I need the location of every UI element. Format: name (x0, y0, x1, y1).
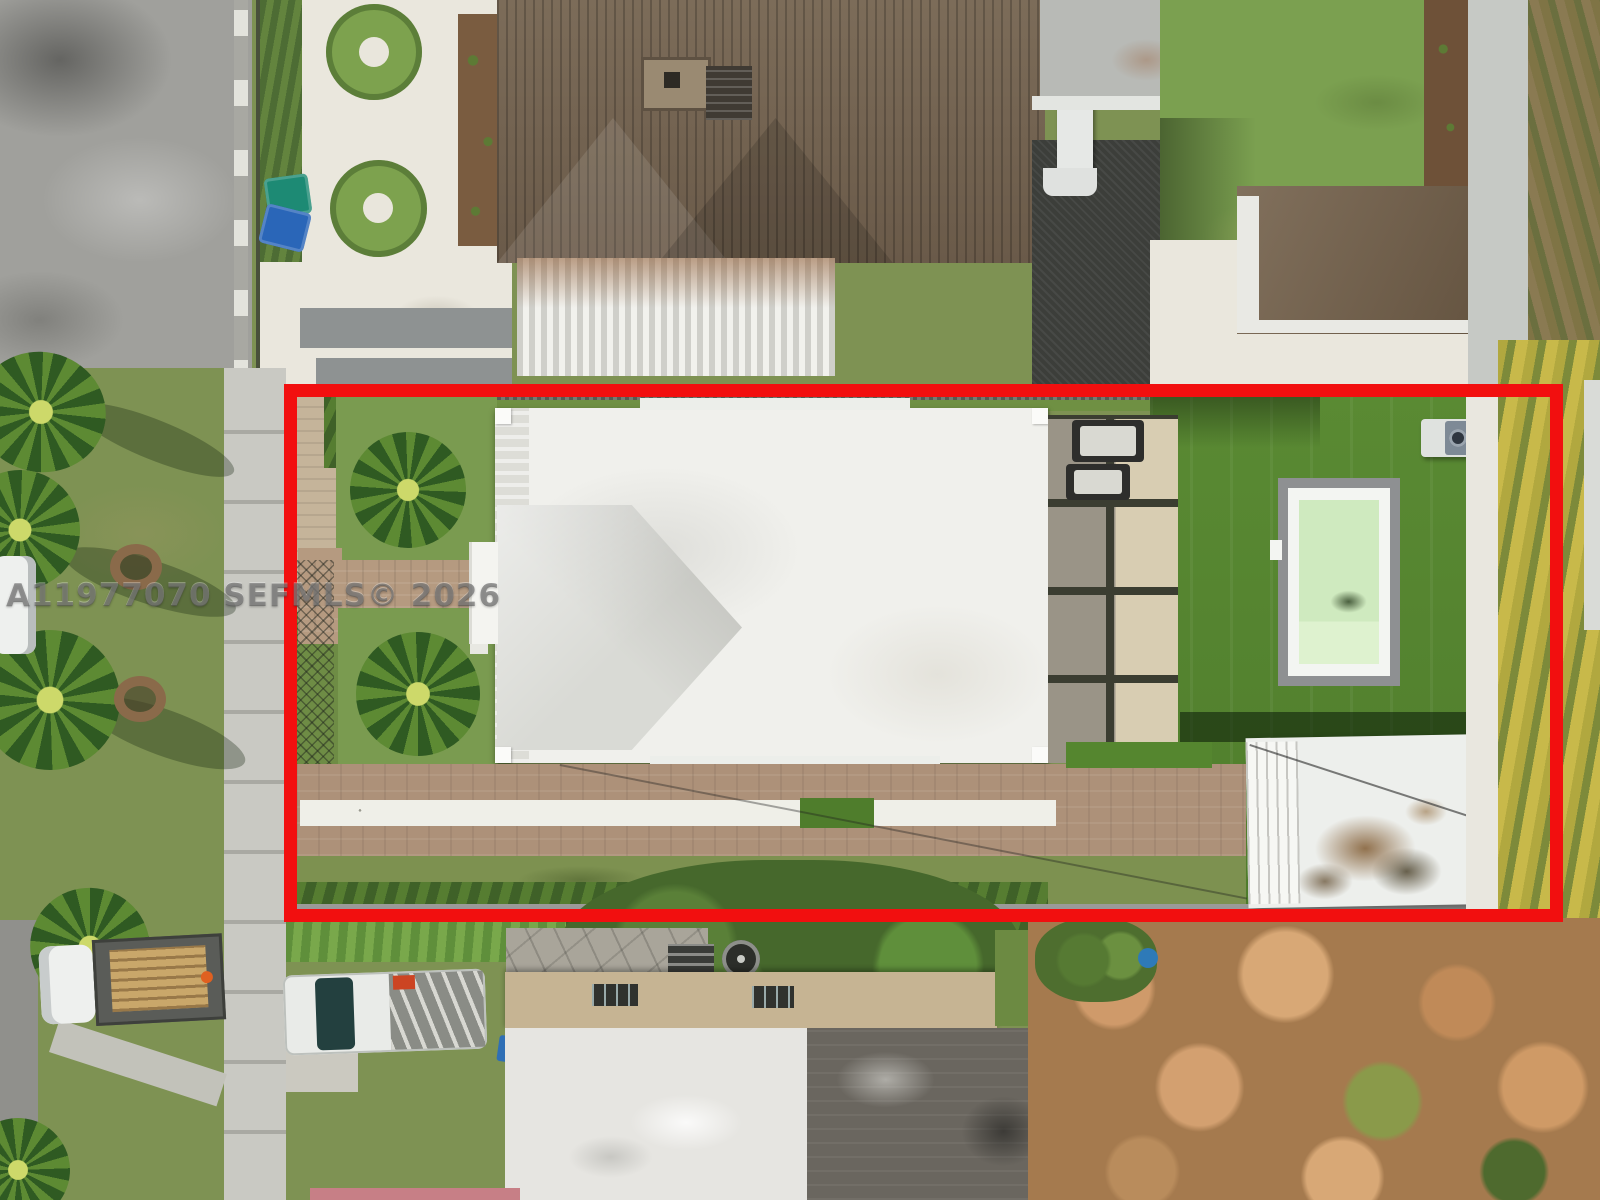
blue-barrel (1138, 948, 1158, 968)
flatbed-truck (38, 929, 229, 1033)
circular-hedge-center (359, 37, 389, 67)
wood-pallets (109, 945, 208, 1012)
circular-hedge (330, 160, 427, 257)
shed-trim (1237, 196, 1259, 328)
neighbor-house-roof-edge (505, 972, 997, 1030)
mls-watermark: A11977070 SEFMLS© 2026 (6, 578, 501, 614)
skylight-window (592, 984, 638, 1006)
chimney-flue (664, 72, 680, 88)
awning-rust-stain (517, 258, 835, 308)
circular-hedge-center (363, 193, 393, 223)
traffic-cone (201, 971, 214, 984)
side-path (1468, 0, 1532, 388)
skylight-window (752, 986, 794, 1008)
rooftop-duct-elbow (1043, 168, 1097, 196)
red-equipment (393, 975, 415, 990)
truck-windshield (315, 977, 355, 1050)
path-sliver (1584, 380, 1600, 630)
fan-hub (737, 955, 745, 963)
neighbor-flat-roof-white (505, 1028, 807, 1200)
truck-cab (38, 944, 96, 1025)
painted-ground-sliver (310, 1188, 520, 1200)
chimney (641, 57, 711, 111)
street-curb (234, 0, 248, 386)
property-boundary-overlay (284, 384, 1563, 922)
dry-hedge-right (1528, 0, 1600, 348)
street-top-left (0, 0, 252, 386)
circular-hedge (326, 4, 422, 100)
sidewalk (224, 368, 286, 1200)
roof-vent (706, 66, 752, 120)
dark-walkway-strip (300, 308, 512, 348)
brown-shed (1237, 186, 1475, 334)
pickup-truck (282, 962, 491, 1061)
mulch-border (1424, 0, 1472, 196)
shed-trim (1237, 320, 1475, 333)
dark-walkway-strip (316, 358, 512, 384)
aerial-photo-scene: A11977070 SEFMLS© 2026 (0, 0, 1600, 1200)
truck-bed (92, 933, 226, 1026)
tree-ring (114, 676, 166, 722)
